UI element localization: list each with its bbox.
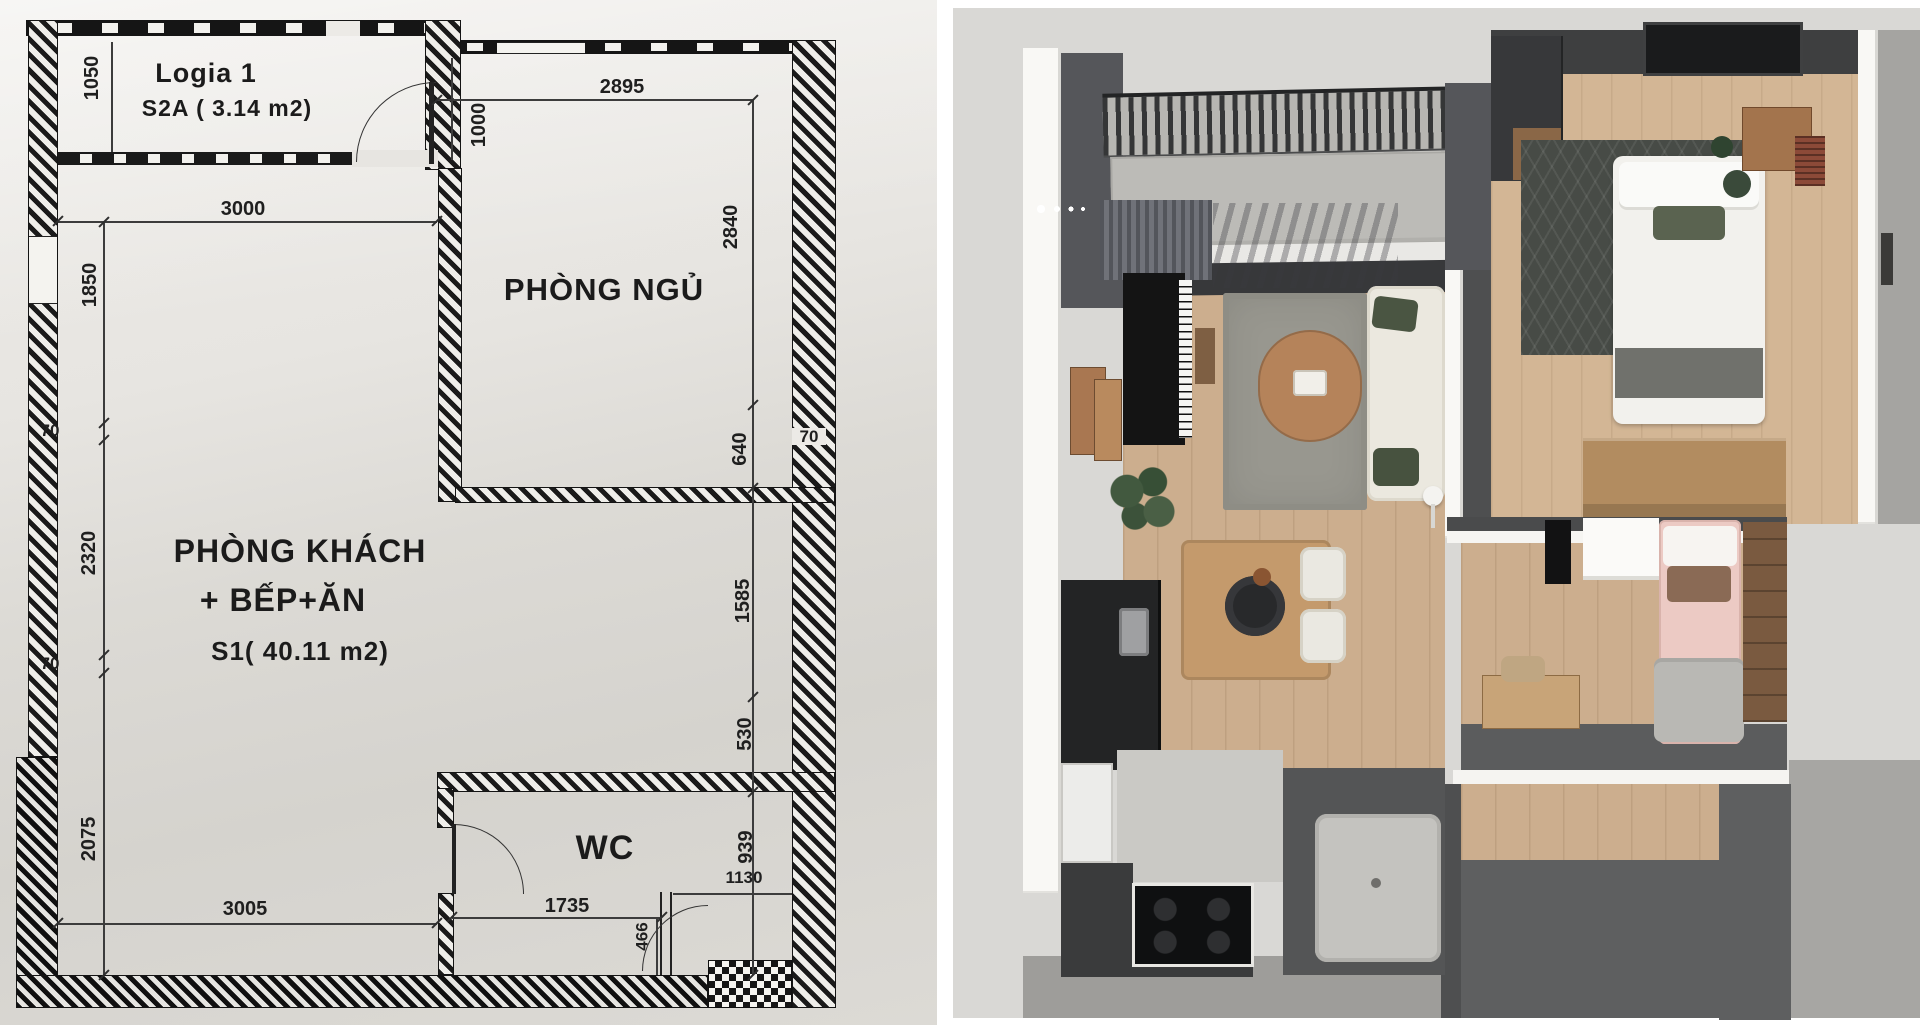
kid-bed-pillow-white <box>1663 526 1737 566</box>
kid-bed-blanket <box>1654 658 1744 742</box>
dim-bedroom-top: 2895 <box>577 77 667 97</box>
entry-threshold <box>708 960 792 1008</box>
bedroom-stool <box>1723 170 1751 198</box>
kid-cabinet-white <box>1583 518 1659 580</box>
window-left <box>29 236 57 304</box>
wall-bottom <box>16 975 708 1008</box>
kid-desk <box>1483 676 1579 728</box>
tv <box>1545 520 1571 584</box>
bedroom-plant <box>1711 136 1733 158</box>
logia-title: Logia 1 <box>116 59 296 89</box>
plant <box>1103 460 1183 538</box>
wc-door-leaf <box>452 824 456 894</box>
piano-keys <box>1179 280 1192 438</box>
dim-line-living-top <box>58 221 437 223</box>
wall-kid-entry-white <box>1453 770 1789 784</box>
piano-bench <box>1195 328 1215 384</box>
dim-line-entry-1130 <box>673 893 792 895</box>
coffee-table-tray <box>1293 370 1327 396</box>
wall-bedroom-left <box>438 168 462 502</box>
bedroom-door-leaf <box>429 82 434 164</box>
outer-wall-right <box>1858 30 1878 524</box>
dining-chair-2 <box>1300 609 1346 663</box>
piano <box>1123 273 1185 445</box>
bed-foot-dresser <box>1583 438 1786 518</box>
dim-bedroom-door: 1000 <box>469 90 489 160</box>
dim-left-2320: 2320 <box>79 518 99 588</box>
dim-left-70a: 70 <box>33 422 67 439</box>
leaning-art-panel-2 <box>1095 380 1121 460</box>
screenshot: Logia 1 S2A ( 3.14 m2) PHÒNG NGỦ PHÒNG K… <box>0 0 1920 1025</box>
logia-door-gap <box>326 21 360 36</box>
dim-wc-466: 466 <box>634 907 651 967</box>
wall-bedroom-left-white <box>1445 270 1463 538</box>
dim-line-wc-1735 <box>452 917 662 919</box>
dining-chair-1 <box>1300 547 1346 601</box>
dim-bedroom-right: 2840 <box>721 192 741 262</box>
window-bedroom-top <box>497 42 585 54</box>
entry-floor-dark-right <box>1719 784 1791 1020</box>
dim-right-640: 640 <box>730 414 750 484</box>
dim-left-70b: 70 <box>33 655 67 672</box>
dim-line-bedroom-door <box>451 58 453 160</box>
wall-balcony-bedroom <box>1445 83 1491 275</box>
outer-wall-left <box>1023 48 1061 893</box>
dim-bottom-3005: 3005 <box>200 899 290 919</box>
radiator <box>1795 136 1825 186</box>
kitchen-sink <box>1119 608 1149 656</box>
wall-bedroom-left-dark <box>1463 270 1491 538</box>
curtain-shadow <box>1213 203 1398 288</box>
wall-wc-top <box>437 772 835 792</box>
shower-tray <box>1315 814 1441 962</box>
dim-right-530: 530 <box>735 699 755 769</box>
dimension-chain-ornament <box>1033 204 1089 214</box>
dim-right-1585: 1585 <box>733 566 753 636</box>
dim-logia-height: 1050 <box>82 43 102 113</box>
living-area: S1( 40.11 m2) <box>170 637 430 666</box>
living-title: PHÒNG KHÁCH <box>140 534 460 569</box>
dim-line-bottom-3005 <box>58 923 437 925</box>
wall-bedroom-living-divider <box>455 487 835 503</box>
balcony-railing <box>1102 86 1455 157</box>
wall-left-lower <box>16 757 58 1008</box>
kid-desk-chair <box>1501 656 1545 682</box>
dim-left-2075: 2075 <box>79 804 99 874</box>
floor-lamp-stem <box>1431 504 1435 528</box>
wall-wc-step <box>437 788 454 828</box>
kid-bed-pillow-brown <box>1667 566 1731 602</box>
bed-throw <box>1615 348 1763 398</box>
wall-right-outer <box>792 40 836 1008</box>
bed-cushion-green <box>1653 206 1725 240</box>
wall-wc-left <box>438 893 454 975</box>
floor-lamp <box>1423 486 1443 506</box>
living-title2: + BẾP+ĂN <box>143 583 423 618</box>
dim-right-70: 70 <box>792 428 826 445</box>
dining-bowl <box>1253 568 1271 586</box>
wall-left-upper <box>28 20 58 757</box>
sofa-cushion-green-bottom <box>1373 448 1419 486</box>
floor-plan-panel: Logia 1 S2A ( 3.14 m2) PHÒNG NGỦ PHÒNG K… <box>0 0 937 1025</box>
sofa-cushion-green-top <box>1371 295 1419 332</box>
kitchen-floor <box>1117 750 1283 882</box>
kid-wardrobe-brown <box>1743 522 1787 722</box>
render-panel <box>953 8 1920 1018</box>
shower-drain <box>1371 878 1381 888</box>
dim-left-1850: 1850 <box>80 250 100 320</box>
logia-area: S2A ( 3.14 m2) <box>112 96 342 121</box>
dim-living-top: 3000 <box>198 199 288 219</box>
wc-title: WC <box>565 830 645 867</box>
dining-centerpiece <box>1225 576 1285 636</box>
wall-art-frame <box>1881 233 1893 285</box>
dim-entry-1130: 1130 <box>714 869 774 886</box>
wall-logia-top <box>26 20 438 36</box>
curtain <box>1100 200 1212 280</box>
kitchen-appliance-white <box>1061 763 1113 863</box>
dim-wc-1735: 1735 <box>522 896 612 916</box>
dim-line-wc-466 <box>656 918 658 975</box>
bedroom-window <box>1643 22 1803 76</box>
shadow-bottom-right <box>1789 760 1920 1018</box>
cooktop <box>1135 886 1251 964</box>
dim-line-left-chain <box>103 222 105 975</box>
bedroom-title: PHÒNG NGỦ <box>449 273 759 307</box>
